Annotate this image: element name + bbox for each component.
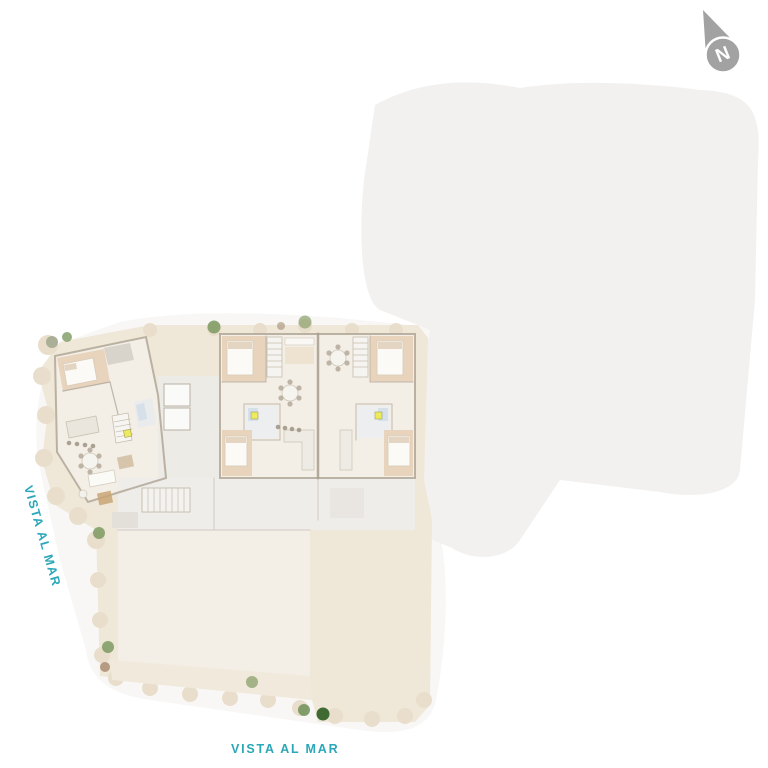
svg-text:VISTA AL MAR: VISTA AL MAR <box>231 742 339 756</box>
